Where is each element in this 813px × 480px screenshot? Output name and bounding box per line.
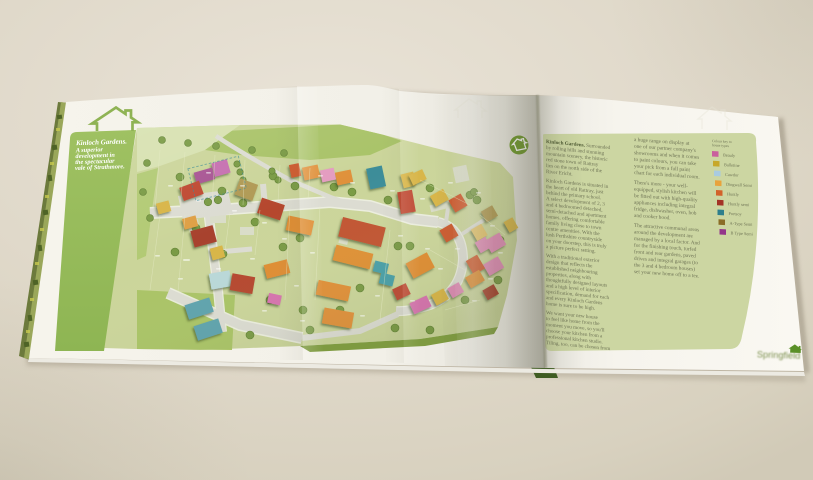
svg-text:Huntly: Huntly: [727, 191, 740, 197]
svg-text:Springfield: Springfield: [757, 349, 801, 361]
svg-text:Cawdor: Cawdor: [725, 172, 739, 178]
svg-text:Portsoy: Portsoy: [729, 211, 743, 217]
svg-text:Balletine: Balletine: [724, 162, 740, 168]
svg-text:Beauly: Beauly: [723, 152, 736, 158]
